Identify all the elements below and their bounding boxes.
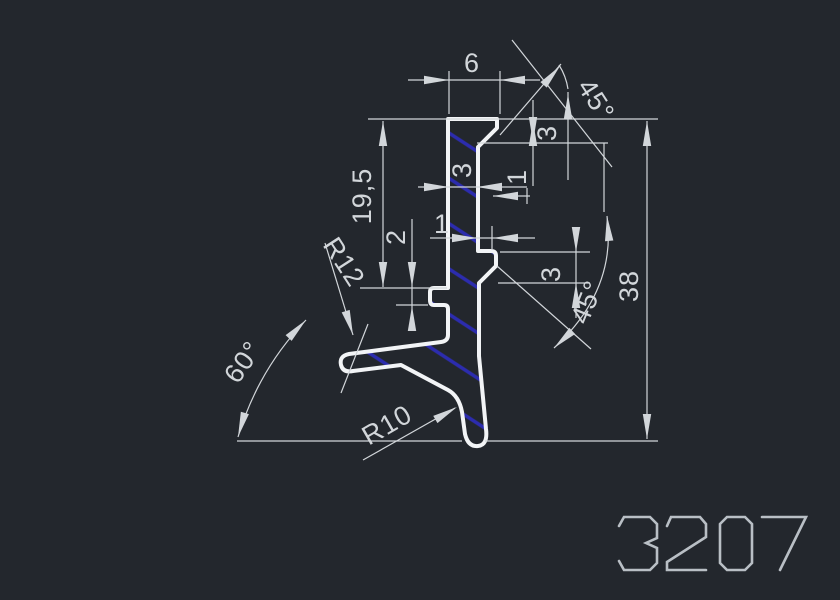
canvas-background — [0, 0, 840, 600]
dim-total-height: 38 — [614, 270, 644, 302]
cad-viewport: 645°313119,52R12345°3860°R10 — [0, 0, 840, 600]
dim-top-offset: 1 — [502, 169, 532, 185]
dim-top-width: 6 — [464, 48, 480, 78]
dim-notch-height: 2 — [381, 229, 411, 245]
dim-top-chamfer-height: 3 — [532, 125, 562, 141]
dim-mid-offset: 1 — [434, 209, 450, 239]
dim-height-upper: 19,5 — [347, 168, 377, 225]
dim-lug-height: 3 — [536, 266, 566, 282]
dim-stem-width: 3 — [447, 162, 477, 178]
cad-drawing: 645°313119,52R12345°3860°R10 — [0, 0, 840, 600]
